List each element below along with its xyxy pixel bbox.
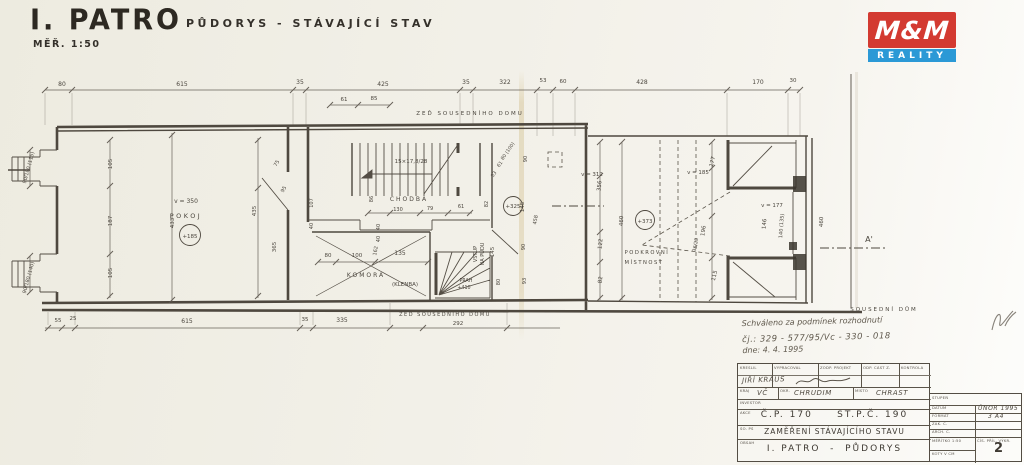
walls-heavy xyxy=(42,124,862,312)
plan-label: NA PŮDU xyxy=(479,242,486,265)
tb-koty-label: KÓTY V CM xyxy=(932,452,955,456)
chimney-blocks xyxy=(789,176,806,270)
plan-label: 40 xyxy=(376,224,382,230)
plan-label: 162 xyxy=(372,246,380,256)
plan-label: 196 xyxy=(700,225,707,237)
title-block-right: STUPEŇ DATUM ÚNOR 1995 FORMÁT 3 A4 ZAK. … xyxy=(930,393,1022,462)
plan-label: 75 xyxy=(273,159,281,168)
handwritten-checkmark-scribble xyxy=(992,311,1016,330)
scanned-floorplan-page: I. PATRO PŮDORYS - STÁVAJÍCÍ STAV MĚŘ. 1… xyxy=(0,0,1024,465)
tb-kreslil-label: KRESLIL xyxy=(740,366,757,370)
plan-label: 460 xyxy=(619,215,625,226)
plan-label: 433 xyxy=(170,217,176,228)
section-line-marks xyxy=(8,170,886,248)
plan-label: 80 xyxy=(496,279,502,285)
tb-kraj-label: KRAJ xyxy=(740,389,750,393)
plan-label: 356 xyxy=(596,180,603,192)
plan-label: 35 xyxy=(302,317,309,323)
plan-label: 115 xyxy=(711,269,719,281)
plan-label: PODKROVNÍ xyxy=(625,249,670,256)
plan-label: v = 350 xyxy=(174,198,198,205)
plan-label: 335 xyxy=(336,317,348,324)
plan-label: 615 xyxy=(181,318,193,325)
plan-label: SOUSEDNÍ DŮM xyxy=(850,306,918,313)
plan-label: +325 xyxy=(505,204,521,210)
tb-arch-label: ARCH. Č. xyxy=(932,430,950,434)
plan-label: 53 xyxy=(540,78,547,84)
plan-label: 428 xyxy=(636,79,648,86)
plan-label: PRAH xyxy=(460,278,473,284)
plan-label: 458 xyxy=(532,215,540,225)
plan-label: 145 xyxy=(490,246,496,257)
plan-label: 460 xyxy=(819,216,825,227)
plan-label: v = 177 xyxy=(761,203,783,209)
plan-label: 135 xyxy=(394,250,406,257)
tb-zodp-projekt-label: ZODP. PROJEKT xyxy=(820,366,851,370)
plan-label: 93 xyxy=(522,278,528,284)
plan-label: 170 xyxy=(752,79,764,86)
approval-stamp: Schváleno za podmínek rozhodnutí čj.: 32… xyxy=(742,313,978,355)
tb-meritko-label: MĚŘÍTKO 1:50 xyxy=(932,439,961,443)
plan-label: 90 xyxy=(521,244,527,250)
tb-misto-label: MÍSTO xyxy=(855,389,868,393)
plan-label: 79 xyxy=(427,206,433,212)
plan-label: 85 xyxy=(371,96,378,102)
plan-label: KOMORA xyxy=(347,272,385,279)
tb-kraj-value: VČ xyxy=(757,389,768,397)
plan-label: A' xyxy=(865,235,873,244)
tb-investor-label: INVESTOR xyxy=(740,401,761,405)
plan-label: 130 xyxy=(393,207,403,213)
tb-okres-value: CHRUDIM xyxy=(794,389,832,397)
plan-label: 35 xyxy=(296,79,304,86)
plan-label: 177 xyxy=(709,155,717,167)
plan-label: +410 xyxy=(457,285,470,291)
plan-label: +373 xyxy=(637,219,653,225)
signature-scribble xyxy=(794,375,854,387)
tb-misto-value: CHRAST xyxy=(876,389,908,397)
tb-line xyxy=(738,439,931,440)
plan-label: 105 xyxy=(108,267,114,278)
plan-label: 86 xyxy=(369,196,375,202)
tb-format-value: 3 A4 xyxy=(988,413,1004,420)
plan-label: 145 xyxy=(520,201,526,212)
tb-obsah-value: I. PATRO - PŮDORYS xyxy=(738,444,931,454)
walls-thin xyxy=(12,74,851,308)
plan-label: 35 xyxy=(462,79,470,86)
plan-label: VSTUP xyxy=(473,246,479,262)
plan-label: 55 xyxy=(55,318,62,324)
tb-okres-label: OKR. xyxy=(780,389,790,393)
tb-line xyxy=(778,387,779,399)
plan-label: 435 xyxy=(252,205,258,216)
plan-label: 140 (135) xyxy=(778,213,786,238)
tb-line xyxy=(738,399,931,400)
plan-label: 122 xyxy=(597,238,604,249)
tb-format-label: FORMÁT xyxy=(932,414,949,418)
title-block: KRESLIL VYPRACOVAL ZODP. PROJEKT ODP. ČÁ… xyxy=(737,363,930,462)
tb-line xyxy=(853,387,854,399)
plan-label: 187 xyxy=(108,215,114,226)
tb-so-value: ZAMĚŘENÍ STÁVAJÍCÍHO STAVU xyxy=(738,427,931,436)
plan-label: +185 xyxy=(182,234,198,240)
plan-label: v = 312 xyxy=(581,172,603,178)
plan-label: 100 xyxy=(352,253,363,259)
plan-label: 36/23 xyxy=(692,237,700,252)
tb-line xyxy=(899,364,900,387)
plan-label: 15×17,8/28 xyxy=(395,159,428,165)
tb-datum-value: ÚNOR 1995 xyxy=(978,405,1018,412)
plan-label: 292 xyxy=(453,321,464,327)
plan-label: 25 xyxy=(70,316,77,322)
plan-label: ZEĎ SOUSEDNÍHO DOMU xyxy=(399,310,491,318)
plan-label: 61 xyxy=(458,204,464,210)
tb-akce-value: Č.P. 170 ST.P.Č. 190 xyxy=(738,410,931,420)
tb-line xyxy=(738,387,931,388)
room-number-circles xyxy=(180,197,655,246)
plan-label: CHODBA xyxy=(390,196,428,203)
plan-label: 146 xyxy=(762,218,769,229)
plan-label: 82 xyxy=(598,276,605,284)
dimension-lines xyxy=(27,87,803,331)
tb-odp-cast-label: ODP. ČÁST Z. xyxy=(863,366,890,370)
tb-line xyxy=(930,437,1022,438)
plan-label: 40 xyxy=(376,236,382,242)
plan-label: 53 xyxy=(490,170,498,178)
plan-label: ZEĎ SOUSEDNÍHO DOMU xyxy=(416,109,524,117)
plan-label: 40 xyxy=(309,223,315,229)
plan-label: 107 xyxy=(309,198,315,208)
plan-label: 80 (100) xyxy=(500,141,517,161)
tb-stupen-label: STUPEŇ xyxy=(932,396,948,400)
plan-label: 105 xyxy=(108,158,114,169)
tb-line xyxy=(738,425,931,426)
tb-line xyxy=(930,450,975,451)
plan-label: 322 xyxy=(499,79,511,86)
plan-label: 425 xyxy=(377,81,389,88)
plan-label: (KLENBA) xyxy=(392,282,418,288)
plan-label: 61 xyxy=(341,97,348,103)
plan-label: 60 xyxy=(560,79,567,85)
plan-labels: 8061535425353225360428170306185ZEĎ SOUSE… xyxy=(22,78,918,327)
tb-drafter-name: JIŘÍ KRAUS xyxy=(742,375,785,384)
plan-label: 615 xyxy=(176,81,188,88)
plan-label: 30 xyxy=(790,78,797,84)
plan-label: 80 xyxy=(58,81,66,88)
plan-label: 80 xyxy=(325,253,332,259)
tb-datum-label: DATUM xyxy=(932,406,947,410)
tb-vypracoval-label: VYPRACOVAL xyxy=(774,366,801,370)
tb-line xyxy=(861,364,862,387)
tb-cis-value: 2 xyxy=(975,441,1022,456)
plan-label: 365 xyxy=(272,241,278,252)
plan-label: 95 xyxy=(280,185,288,194)
plan-label: v = 185 xyxy=(687,170,709,176)
plan-label: 82 xyxy=(484,201,490,207)
tb-zak-label: ZAK. Č. xyxy=(932,422,947,426)
tb-kontrola-label: KONTROLA xyxy=(901,366,923,370)
plan-label: MÍSTNOST xyxy=(625,259,664,266)
plan-label: 90 xyxy=(523,156,529,162)
